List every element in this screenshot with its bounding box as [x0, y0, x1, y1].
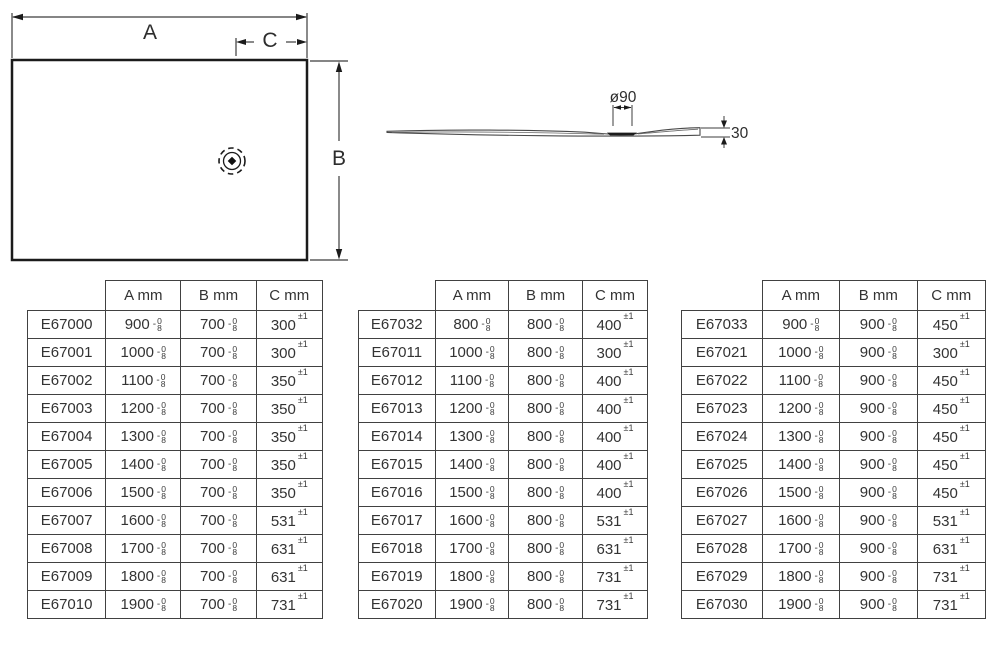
- tolerance-ab: -08: [486, 542, 495, 556]
- tolerance-ab: -08: [888, 430, 897, 444]
- c-dimension-cell: 731±1: [917, 591, 985, 619]
- b-dimension-cell: 800-08: [509, 479, 583, 507]
- dimension-value: 800: [527, 372, 552, 389]
- table-row: E670281700-08900-08631±1: [682, 535, 986, 563]
- dimension-value: 900: [860, 372, 885, 389]
- table-row: E670061500-08700-08350±1: [28, 479, 323, 507]
- c-dimension-cell: 631±1: [256, 563, 322, 591]
- product-code-cell: E67023: [682, 395, 763, 423]
- tolerance-c: ±1: [298, 367, 308, 377]
- dimension-value: 900: [860, 456, 885, 473]
- table-header-row: A mmB mmC mm: [28, 281, 323, 311]
- dimension-height: [701, 116, 730, 148]
- dimension-value: 450: [933, 401, 958, 418]
- b-dimension-cell: 700-08: [181, 423, 256, 451]
- product-code-cell: E67033: [682, 311, 763, 339]
- product-code-cell: E67017: [359, 507, 436, 535]
- dimension-value: 300: [933, 345, 958, 362]
- table-header-row: A mmB mmC mm: [359, 281, 648, 311]
- dimension-label-diameter: ø90: [610, 89, 637, 106]
- c-dimension-cell: 300±1: [256, 339, 322, 367]
- dimension-value: 700: [200, 344, 225, 361]
- column-header: C mm: [256, 281, 322, 311]
- dimension-value: 731: [933, 597, 958, 614]
- table-row: E670241300-08900-08450±1: [682, 423, 986, 451]
- a-dimension-cell: 1700-08: [435, 535, 509, 563]
- table-row: E670191800-08800-08731±1: [359, 563, 648, 591]
- a-dimension-cell: 1800-08: [762, 563, 840, 591]
- a-dimension-cell: 1100-08: [762, 367, 840, 395]
- dimension-value: 900: [860, 568, 885, 585]
- c-dimension-cell: 450±1: [917, 479, 985, 507]
- a-dimension-cell: 1500-08: [762, 479, 840, 507]
- b-dimension-cell: 800-08: [509, 451, 583, 479]
- dimension-value: 731: [596, 597, 621, 614]
- product-code-cell: E67022: [682, 367, 763, 395]
- dimension-value: 1700: [449, 540, 482, 557]
- table-row: E670051400-08700-08350±1: [28, 451, 323, 479]
- tolerance-c: ±1: [298, 563, 308, 573]
- product-code-cell: E67000: [28, 311, 106, 339]
- a-dimension-cell: 1500-08: [435, 479, 509, 507]
- c-dimension-cell: 731±1: [256, 591, 322, 619]
- dimension-label-height: 30: [731, 125, 749, 142]
- tolerance-ab: -08: [228, 542, 237, 556]
- b-dimension-cell: 800-08: [509, 563, 583, 591]
- c-dimension-cell: 450±1: [917, 395, 985, 423]
- tolerance-ab: -08: [157, 346, 166, 360]
- tolerance-c: ±1: [960, 339, 970, 349]
- table-row: E670301900-08900-08731±1: [682, 591, 986, 619]
- product-code-cell: E67013: [359, 395, 436, 423]
- tolerance-ab: -08: [481, 318, 490, 332]
- b-dimension-cell: 800-08: [509, 339, 583, 367]
- a-dimension-cell: 1400-08: [435, 451, 509, 479]
- dimension-value: 1900: [449, 596, 482, 613]
- b-dimension-cell: 700-08: [181, 311, 256, 339]
- dimension-value: 1100: [779, 372, 811, 389]
- tolerance-ab: -08: [486, 458, 495, 472]
- c-dimension-cell: 731±1: [582, 563, 647, 591]
- tolerance-c: ±1: [624, 563, 634, 573]
- dimension-value: 900: [860, 344, 885, 361]
- dimension-table-900: A mmB mmC mmE67033900-08900-08450±1E6702…: [681, 280, 986, 619]
- dimension-value: 1400: [778, 456, 811, 473]
- product-code-cell: E67021: [682, 339, 763, 367]
- drain-symbol: [219, 148, 245, 174]
- tolerance-ab: -08: [555, 318, 564, 332]
- dimension-value: 700: [200, 512, 225, 529]
- table-row: E670121100-08800-08400±1: [359, 367, 648, 395]
- b-dimension-cell: 900-08: [840, 563, 918, 591]
- tolerance-ab: -08: [228, 430, 237, 444]
- column-header: B mm: [509, 281, 583, 311]
- dimension-value: 900: [860, 596, 885, 613]
- dimension-value: 700: [200, 456, 225, 473]
- column-header: B mm: [181, 281, 256, 311]
- dimension-value: 1300: [449, 428, 482, 445]
- dimension-value: 731: [933, 569, 958, 586]
- tolerance-ab: -08: [814, 570, 823, 584]
- c-dimension-cell: 450±1: [917, 451, 985, 479]
- dimension-value: 1500: [778, 484, 811, 501]
- tolerance-ab: -08: [157, 430, 166, 444]
- tolerance-c: ±1: [624, 339, 634, 349]
- dimension-value: 700: [200, 400, 225, 417]
- tolerance-c: ±1: [624, 451, 634, 461]
- dimension-value: 1000: [449, 344, 482, 361]
- dimension-value: 450: [933, 457, 958, 474]
- dimension-value: 800: [527, 400, 552, 417]
- a-dimension-cell: 1000-08: [435, 339, 509, 367]
- c-dimension-cell: 400±1: [582, 479, 647, 507]
- tolerance-ab: -08: [157, 514, 166, 528]
- tolerance-ab: -08: [814, 542, 823, 556]
- dimension-value: 900: [860, 316, 885, 333]
- table-row: E670291800-08900-08731±1: [682, 563, 986, 591]
- table-row: E670261500-08900-08450±1: [682, 479, 986, 507]
- dimension-value: 1800: [778, 568, 811, 585]
- tolerance-ab: -08: [486, 486, 495, 500]
- b-dimension-cell: 700-08: [181, 535, 256, 563]
- product-code-cell: E67012: [359, 367, 436, 395]
- tolerance-ab: -08: [157, 458, 166, 472]
- dimension-value: 700: [200, 372, 225, 389]
- b-dimension-cell: 800-08: [509, 395, 583, 423]
- dimension-value: 531: [596, 513, 621, 530]
- tolerance-ab: -08: [888, 514, 897, 528]
- a-dimension-cell: 1100-08: [106, 367, 181, 395]
- a-dimension-cell: 1900-08: [106, 591, 181, 619]
- dimension-value: 900: [860, 540, 885, 557]
- a-dimension-cell: 1300-08: [106, 423, 181, 451]
- dimension-value: 450: [933, 429, 958, 446]
- dimension-value: 300: [596, 345, 621, 362]
- table-row: E670111000-08800-08300±1: [359, 339, 648, 367]
- table-row: E670071600-08700-08531±1: [28, 507, 323, 535]
- table-row: E670231200-08900-08450±1: [682, 395, 986, 423]
- tolerance-ab: -08: [555, 346, 564, 360]
- product-code-cell: E67015: [359, 451, 436, 479]
- tolerance-c: ±1: [624, 311, 634, 321]
- b-dimension-cell: 900-08: [840, 367, 918, 395]
- tolerance-c: ±1: [624, 423, 634, 433]
- dimension-value: 900: [860, 400, 885, 417]
- b-dimension-cell: 900-08: [840, 339, 918, 367]
- dimension-label-b: B: [332, 147, 346, 170]
- b-dimension-cell: 900-08: [840, 535, 918, 563]
- dimension-value: 450: [933, 317, 958, 334]
- dimension-value: 1100: [450, 372, 482, 389]
- tolerance-ab: -08: [814, 458, 823, 472]
- table-row: E670011000-08700-08300±1: [28, 339, 323, 367]
- table-row: E670171600-08800-08531±1: [359, 507, 648, 535]
- tolerance-c: ±1: [624, 479, 634, 489]
- dimension-value: 631: [596, 541, 621, 558]
- dimension-value: 800: [453, 316, 478, 333]
- dimension-label-a: A: [143, 21, 157, 44]
- b-dimension-cell: 800-08: [509, 423, 583, 451]
- tolerance-c: ±1: [960, 535, 970, 545]
- tolerance-ab: -08: [228, 486, 237, 500]
- tolerance-ab: -08: [555, 486, 564, 500]
- tolerance-c: ±1: [624, 535, 634, 545]
- tolerance-ab: -08: [153, 318, 162, 332]
- c-dimension-cell: 350±1: [256, 479, 322, 507]
- b-dimension-cell: 700-08: [181, 591, 256, 619]
- column-header: B mm: [840, 281, 918, 311]
- dimension-value: 1400: [449, 456, 482, 473]
- dimension-value: 1600: [121, 512, 154, 529]
- product-code-cell: E67003: [28, 395, 106, 423]
- dimension-value: 1500: [121, 484, 154, 501]
- b-dimension-cell: 700-08: [181, 367, 256, 395]
- tolerance-c: ±1: [960, 395, 970, 405]
- tolerance-ab: -08: [814, 486, 823, 500]
- dimension-value: 631: [271, 569, 296, 586]
- tolerance-ab: -08: [157, 570, 166, 584]
- c-dimension-cell: 350±1: [256, 451, 322, 479]
- c-dimension-cell: 731±1: [582, 591, 647, 619]
- tolerance-ab: -08: [888, 346, 897, 360]
- dimension-value: 1300: [121, 428, 154, 445]
- tolerance-c: ±1: [960, 507, 970, 517]
- b-dimension-cell: 800-08: [509, 311, 583, 339]
- tolerance-ab: -08: [888, 542, 897, 556]
- c-dimension-cell: 531±1: [582, 507, 647, 535]
- b-dimension-cell: 900-08: [840, 451, 918, 479]
- tolerance-ab: -08: [157, 598, 166, 612]
- dimension-value: 800: [527, 512, 552, 529]
- c-dimension-cell: 631±1: [582, 535, 647, 563]
- column-header: A mm: [435, 281, 509, 311]
- c-dimension-cell: 731±1: [917, 563, 985, 591]
- tolerance-ab: -08: [486, 402, 495, 416]
- dimension-value: 800: [527, 428, 552, 445]
- tolerance-ab: -08: [888, 486, 897, 500]
- b-dimension-cell: 800-08: [509, 535, 583, 563]
- tolerance-c: ±1: [624, 507, 634, 517]
- table-row: E670031200-08700-08350±1: [28, 395, 323, 423]
- tolerance-ab: -08: [228, 570, 237, 584]
- dimension-value: 1900: [778, 596, 811, 613]
- table-row: E670141300-08800-08400±1: [359, 423, 648, 451]
- dimension-value: 900: [782, 316, 807, 333]
- tolerance-ab: -08: [555, 458, 564, 472]
- c-dimension-cell: 531±1: [256, 507, 322, 535]
- dimension-table-700: A mmB mmC mmE67000900-08700-08300±1E6700…: [27, 280, 323, 619]
- tolerance-ab: -08: [157, 486, 166, 500]
- c-dimension-cell: 300±1: [256, 311, 322, 339]
- plan-view-diagram: A C B: [0, 0, 360, 272]
- dimension-value: 1200: [778, 400, 811, 417]
- b-dimension-cell: 700-08: [181, 395, 256, 423]
- a-dimension-cell: 1200-08: [762, 395, 840, 423]
- column-header: C mm: [582, 281, 647, 311]
- b-dimension-cell: 700-08: [181, 479, 256, 507]
- dimension-value: 531: [933, 513, 958, 530]
- dimension-diameter: [613, 105, 632, 126]
- dimension-value: 731: [596, 569, 621, 586]
- product-code-cell: E67028: [682, 535, 763, 563]
- product-code-cell: E67018: [359, 535, 436, 563]
- product-code-cell: E67010: [28, 591, 106, 619]
- tolerance-c: ±1: [298, 535, 308, 545]
- tolerance-ab: -08: [888, 458, 897, 472]
- b-dimension-cell: 800-08: [509, 591, 583, 619]
- tolerance-ab: -08: [810, 318, 819, 332]
- tolerance-c: ±1: [960, 479, 970, 489]
- column-header: C mm: [917, 281, 985, 311]
- dimension-value: 800: [527, 540, 552, 557]
- tolerance-ab: -08: [814, 430, 823, 444]
- dimension-value: 1600: [778, 512, 811, 529]
- a-dimension-cell: 1800-08: [435, 563, 509, 591]
- a-dimension-cell: 1000-08: [762, 339, 840, 367]
- tolerance-ab: -08: [814, 374, 823, 388]
- c-dimension-cell: 450±1: [917, 311, 985, 339]
- dimension-value: 900: [860, 512, 885, 529]
- table-row: E670131200-08800-08400±1: [359, 395, 648, 423]
- tolerance-ab: -08: [486, 598, 495, 612]
- a-dimension-cell: 1800-08: [106, 563, 181, 591]
- table-row: E670101900-08700-08731±1: [28, 591, 323, 619]
- tolerance-ab: -08: [555, 514, 564, 528]
- a-dimension-cell: 900-08: [762, 311, 840, 339]
- table-row: E670091800-08700-08631±1: [28, 563, 323, 591]
- tolerance-ab: -08: [814, 402, 823, 416]
- c-dimension-cell: 350±1: [256, 423, 322, 451]
- b-dimension-cell: 900-08: [840, 591, 918, 619]
- corner-cell: [682, 281, 763, 311]
- dimension-value: 700: [200, 484, 225, 501]
- a-dimension-cell: 1300-08: [762, 423, 840, 451]
- tolerance-c: ±1: [298, 339, 308, 349]
- product-code-cell: E67016: [359, 479, 436, 507]
- c-dimension-cell: 400±1: [582, 451, 647, 479]
- tolerance-c: ±1: [298, 395, 308, 405]
- tolerance-ab: -08: [888, 318, 897, 332]
- product-code-cell: E67007: [28, 507, 106, 535]
- table-row: E670201900-08800-08731±1: [359, 591, 648, 619]
- tolerance-c: ±1: [298, 591, 308, 601]
- dimension-value: 800: [527, 596, 552, 613]
- tolerance-ab: -08: [228, 402, 237, 416]
- tolerance-c: ±1: [298, 311, 308, 321]
- tolerance-ab: -08: [888, 374, 897, 388]
- dimension-value: 350: [271, 401, 296, 418]
- dimension-value: 700: [200, 568, 225, 585]
- tolerance-ab: -08: [486, 514, 495, 528]
- a-dimension-cell: 1700-08: [762, 535, 840, 563]
- a-dimension-cell: 1900-08: [762, 591, 840, 619]
- tolerance-ab: -08: [228, 318, 237, 332]
- dimension-value: 1700: [121, 540, 154, 557]
- c-dimension-cell: 400±1: [582, 423, 647, 451]
- table-row: E670041300-08700-08350±1: [28, 423, 323, 451]
- c-dimension-cell: 631±1: [256, 535, 322, 563]
- dimension-value: 700: [200, 596, 225, 613]
- a-dimension-cell: 1500-08: [106, 479, 181, 507]
- tolerance-ab: -08: [486, 570, 495, 584]
- dimension-value: 1800: [449, 568, 482, 585]
- b-dimension-cell: 700-08: [181, 451, 256, 479]
- tolerance-ab: -08: [555, 570, 564, 584]
- a-dimension-cell: 1700-08: [106, 535, 181, 563]
- tolerance-ab: -08: [228, 458, 237, 472]
- dimension-value: 1500: [449, 484, 482, 501]
- dimension-value: 1700: [778, 540, 811, 557]
- dimension-value: 1900: [121, 596, 154, 613]
- dimension-value: 900: [860, 484, 885, 501]
- a-dimension-cell: 900-08: [106, 311, 181, 339]
- dimension-value: 700: [200, 540, 225, 557]
- dimension-value: 700: [200, 316, 225, 333]
- dimension-value: 300: [271, 317, 296, 334]
- c-dimension-cell: 450±1: [917, 367, 985, 395]
- b-dimension-cell: 900-08: [840, 423, 918, 451]
- product-code-cell: E67014: [359, 423, 436, 451]
- tolerance-c: ±1: [298, 423, 308, 433]
- dimension-value: 1300: [778, 428, 811, 445]
- product-code-cell: E67024: [682, 423, 763, 451]
- column-header: A mm: [106, 281, 181, 311]
- tolerance-ab: -08: [156, 374, 165, 388]
- tolerance-ab: -08: [555, 430, 564, 444]
- a-dimension-cell: 1100-08: [435, 367, 509, 395]
- product-code-cell: E67005: [28, 451, 106, 479]
- tolerance-ab: -08: [228, 598, 237, 612]
- product-code-cell: E67011: [359, 339, 436, 367]
- table-row: E670081700-08700-08631±1: [28, 535, 323, 563]
- a-dimension-cell: 1000-08: [106, 339, 181, 367]
- product-code-cell: E67004: [28, 423, 106, 451]
- tolerance-ab: -08: [228, 346, 237, 360]
- dimension-value: 400: [596, 373, 621, 390]
- dimension-value: 900: [860, 428, 885, 445]
- table-row: E670211000-08900-08300±1: [682, 339, 986, 367]
- product-code-cell: E67025: [682, 451, 763, 479]
- dimension-value: 350: [271, 429, 296, 446]
- dimension-value: 800: [527, 484, 552, 501]
- tolerance-c: ±1: [624, 367, 634, 377]
- a-dimension-cell: 1400-08: [106, 451, 181, 479]
- column-header: A mm: [762, 281, 840, 311]
- tolerance-ab: -08: [888, 598, 897, 612]
- tolerance-ab: -08: [888, 402, 897, 416]
- b-dimension-cell: 800-08: [509, 367, 583, 395]
- tray-plan-outline: [12, 60, 307, 260]
- table-header-row: A mmB mmC mm: [682, 281, 986, 311]
- dimension-value: 1100: [121, 372, 153, 389]
- dimension-value: 1600: [449, 512, 482, 529]
- c-dimension-cell: 350±1: [256, 367, 322, 395]
- a-dimension-cell: 1300-08: [435, 423, 509, 451]
- dimension-value: 1200: [121, 400, 154, 417]
- dimension-value: 800: [527, 568, 552, 585]
- table-row: E670161500-08800-08400±1: [359, 479, 648, 507]
- c-dimension-cell: 400±1: [582, 395, 647, 423]
- b-dimension-cell: 700-08: [181, 563, 256, 591]
- b-dimension-cell: 700-08: [181, 507, 256, 535]
- tolerance-ab: -08: [814, 598, 823, 612]
- table-row: E670271600-08900-08531±1: [682, 507, 986, 535]
- tolerance-ab: -08: [486, 346, 495, 360]
- tolerance-c: ±1: [960, 367, 970, 377]
- c-dimension-cell: 400±1: [582, 367, 647, 395]
- b-dimension-cell: 800-08: [509, 507, 583, 535]
- c-dimension-cell: 400±1: [582, 311, 647, 339]
